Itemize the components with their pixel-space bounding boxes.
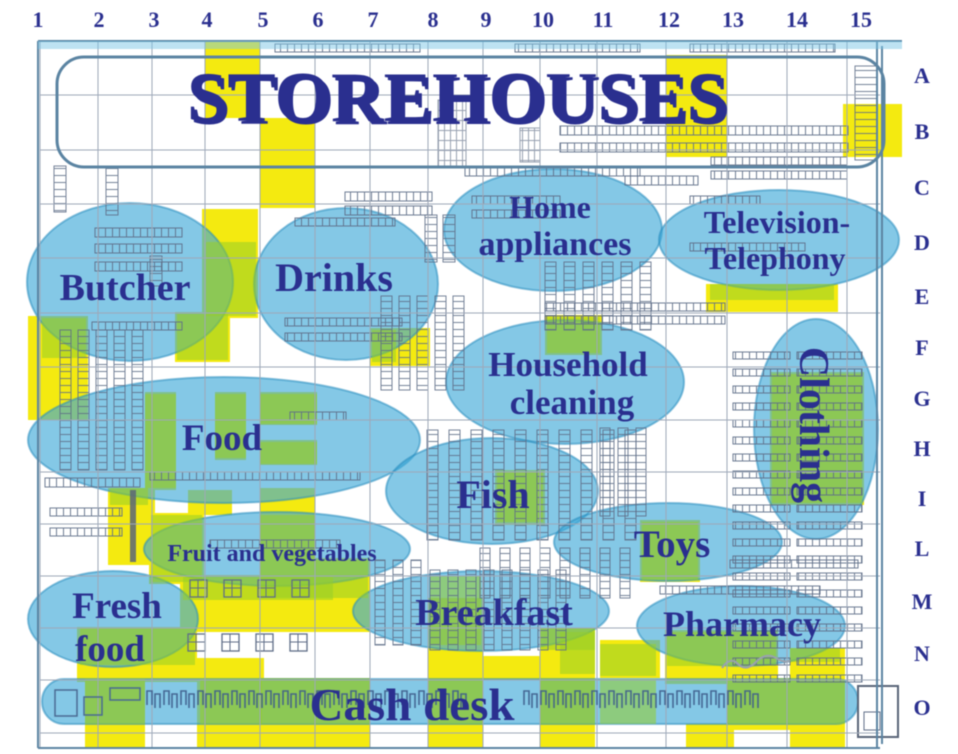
svg-text:Household: Household — [488, 345, 648, 384]
svg-text:D: D — [914, 230, 930, 255]
svg-text:N: N — [914, 641, 930, 666]
svg-text:12: 12 — [658, 7, 680, 32]
svg-text:Clothing: Clothing — [790, 347, 836, 503]
svg-text:C: C — [914, 175, 930, 200]
svg-text:E: E — [915, 284, 930, 309]
svg-text:Pharmacy: Pharmacy — [663, 604, 821, 644]
svg-text:L: L — [915, 536, 930, 561]
svg-text:Telephony: Telephony — [704, 240, 845, 276]
svg-text:4: 4 — [202, 7, 213, 32]
svg-text:Television-: Television- — [704, 204, 850, 240]
svg-text:M: M — [912, 589, 933, 614]
svg-text:7: 7 — [368, 7, 379, 32]
svg-text:9: 9 — [481, 7, 492, 32]
svg-text:cleaning: cleaning — [510, 383, 635, 422]
svg-text:5: 5 — [258, 7, 269, 32]
svg-text:A: A — [914, 63, 930, 88]
svg-text:Home: Home — [509, 189, 591, 225]
svg-text:I: I — [918, 486, 927, 511]
svg-text:8: 8 — [428, 7, 439, 32]
svg-text:F: F — [915, 335, 928, 360]
svg-text:Drinks: Drinks — [275, 255, 393, 300]
svg-text:H: H — [913, 436, 930, 461]
svg-text:3: 3 — [149, 7, 160, 32]
svg-text:14: 14 — [786, 7, 808, 32]
svg-text:2: 2 — [94, 7, 105, 32]
svg-text:B: B — [915, 119, 930, 144]
svg-text:Butcher: Butcher — [60, 267, 191, 309]
svg-text:11: 11 — [593, 7, 614, 32]
svg-text:10: 10 — [532, 7, 554, 32]
svg-text:O: O — [913, 695, 930, 720]
svg-text:13: 13 — [722, 7, 744, 32]
svg-text:1: 1 — [33, 7, 44, 32]
svg-text:6: 6 — [313, 7, 324, 32]
svg-text:Cash desk: Cash desk — [310, 679, 515, 730]
svg-text:Fish: Fish — [456, 472, 529, 517]
svg-text:Food: Food — [182, 418, 263, 459]
svg-text:15: 15 — [850, 7, 872, 32]
svg-text:food: food — [75, 629, 145, 670]
svg-text:Breakfast: Breakfast — [415, 592, 573, 634]
svg-text:Fruit and vegetables: Fruit and vegetables — [167, 541, 376, 567]
svg-text:Toys: Toys — [634, 523, 711, 566]
svg-text:G: G — [913, 386, 930, 411]
svg-text:appliances: appliances — [478, 226, 631, 263]
svg-text:Fresh: Fresh — [72, 586, 162, 627]
svg-text:STOREHOUSES: STOREHOUSES — [190, 62, 730, 140]
